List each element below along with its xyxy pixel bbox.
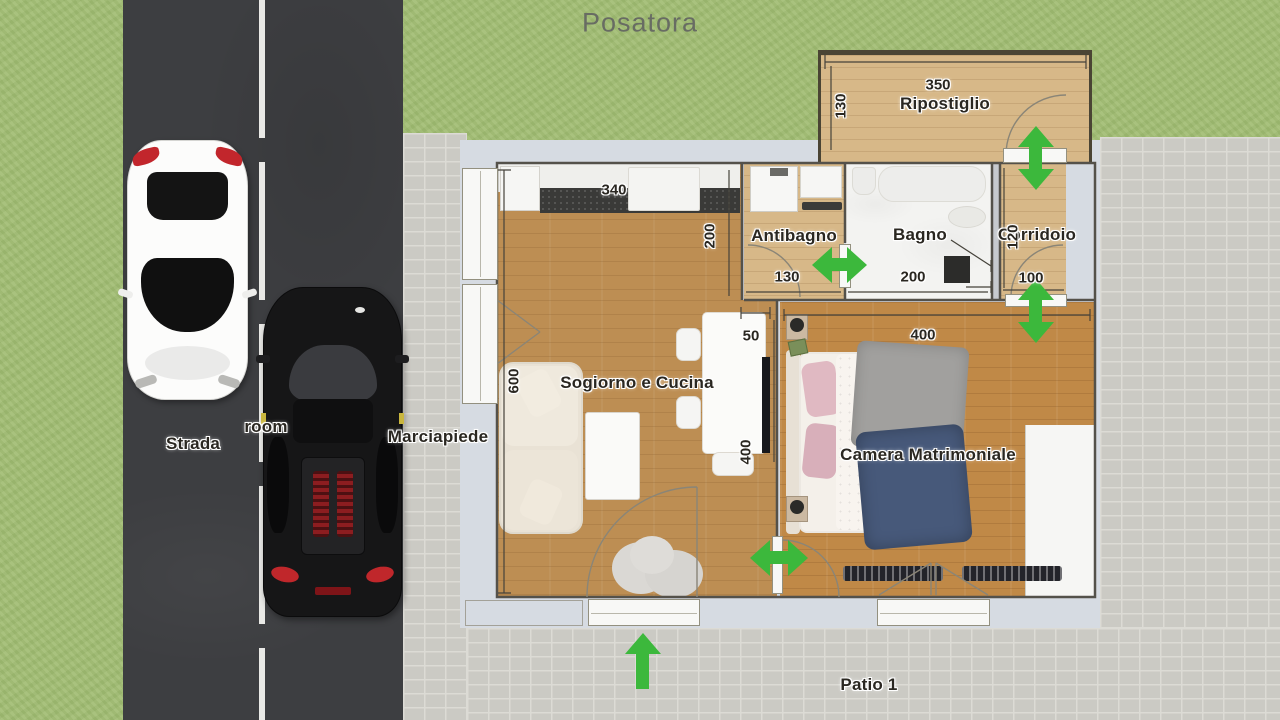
label-strada: Strada xyxy=(166,434,220,454)
dim-corridoio-width: 100 xyxy=(1018,270,1043,287)
radiator-left xyxy=(843,566,943,581)
floor-plan-scene: Posatora Ripostiglio 350 130 Antibagno 1… xyxy=(0,0,1280,720)
label-soggiorno: Sogiorno e Cucina xyxy=(560,373,714,393)
dining-chair-2 xyxy=(676,396,701,429)
arrow-corridoio-camera-icon xyxy=(1017,279,1054,343)
black-car-mirror-left xyxy=(256,355,270,363)
black-car-engine-right xyxy=(337,471,353,537)
coffee-table xyxy=(585,412,640,500)
black-car xyxy=(263,287,402,617)
antibagno-sink-cabinet xyxy=(800,166,842,198)
white-car xyxy=(127,140,248,400)
entrance-door xyxy=(588,599,700,626)
arrow-entrance-up-icon xyxy=(624,633,661,689)
arrow-ripostiglio-corridoio-icon xyxy=(1017,126,1054,190)
white-car-hood-shade xyxy=(145,346,230,380)
lamp-top xyxy=(790,318,804,332)
dim-ripostiglio-height: 130 xyxy=(833,93,850,118)
white-car-rear-window xyxy=(147,172,228,220)
window-left-1 xyxy=(462,168,498,280)
label-patio: Patio 1 xyxy=(840,675,897,695)
bed-pillow-2 xyxy=(801,422,840,479)
dim-table-width: 50 xyxy=(743,328,760,345)
page-title: Posatora xyxy=(582,8,698,39)
patio-pavement-right xyxy=(1100,137,1280,628)
black-car-highlight xyxy=(355,307,365,313)
bathroom-unit-dark xyxy=(944,256,970,283)
washing-machine-panel xyxy=(770,168,788,176)
arrow-soggiorno-camera-icon xyxy=(750,539,808,576)
dim-corridoio-height: 120 xyxy=(1005,224,1022,249)
dim-bagno-width: 200 xyxy=(900,269,925,286)
kitchen-fridge xyxy=(500,166,540,211)
dim-table-length: 400 xyxy=(738,439,755,464)
dim-soggiorno-top: 340 xyxy=(601,182,626,199)
dim-ripostiglio-width: 350 xyxy=(925,77,950,94)
blanket-navy xyxy=(855,424,973,551)
black-car-marker-right xyxy=(399,413,404,424)
black-car-engine-bay xyxy=(301,457,365,555)
dim-soggiorno-left: 600 xyxy=(506,368,523,393)
label-room: room xyxy=(244,417,287,437)
toilet xyxy=(852,167,876,195)
tv-panel xyxy=(762,357,770,453)
dim-soggiorno-right: 200 xyxy=(702,223,719,248)
window-left-2 xyxy=(462,284,498,404)
dim-camera-width: 400 xyxy=(910,327,935,344)
radiator-right xyxy=(962,566,1062,581)
entrance-step xyxy=(465,600,583,626)
label-antibagno: Antibagno xyxy=(751,226,837,246)
black-car-rear-strip xyxy=(315,587,351,595)
rug-blob-3 xyxy=(630,536,674,574)
bedroom-window xyxy=(877,599,990,626)
patio-pavement-bottom xyxy=(467,628,1280,720)
label-marciapiede: Marciapiede xyxy=(388,427,488,447)
label-bagno: Bagno xyxy=(893,225,947,245)
kitchen-sink-unit xyxy=(628,167,700,211)
dim-antibagno-width: 130 xyxy=(774,269,799,286)
bathtub xyxy=(878,166,986,202)
label-ripostiglio: Ripostiglio xyxy=(900,94,990,114)
arrow-antibagno-bagno-icon xyxy=(812,246,867,283)
black-car-intake-right xyxy=(376,437,398,533)
lamp-bottom xyxy=(790,500,804,514)
black-car-engine-left xyxy=(313,471,329,537)
black-car-windshield xyxy=(289,345,377,403)
dining-chair-1 xyxy=(676,328,701,361)
antibagno-counter-edge xyxy=(802,202,842,210)
black-car-intake-left xyxy=(267,437,289,533)
label-camera: Camera Matrimoniale xyxy=(840,445,1016,465)
black-car-roof xyxy=(293,399,373,443)
bathroom-sink xyxy=(948,206,986,228)
black-car-mirror-right xyxy=(395,355,409,363)
